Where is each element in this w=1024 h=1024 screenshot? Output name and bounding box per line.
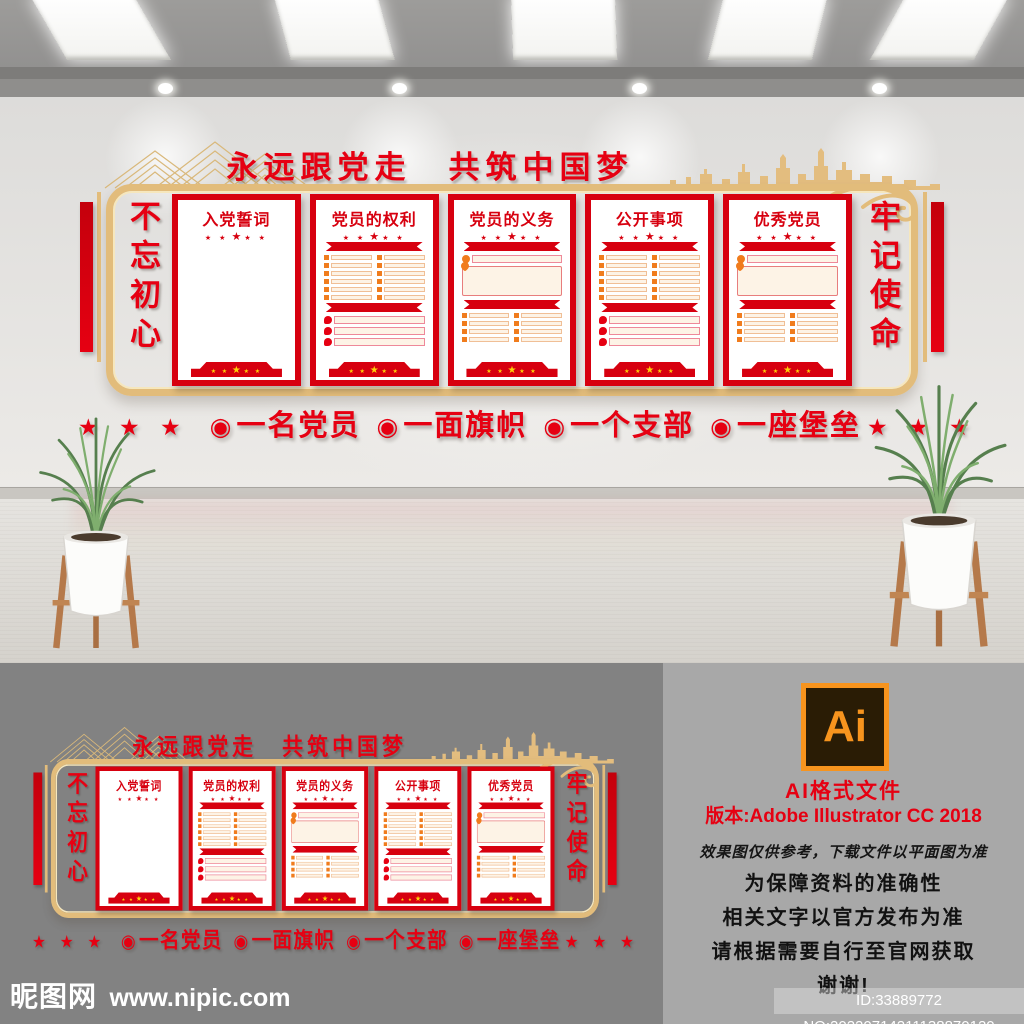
text-bar (424, 842, 452, 846)
watermark: 昵图网 www.nipic.com (10, 975, 291, 1015)
list-item (513, 862, 545, 866)
star-big: ★ (229, 365, 244, 376)
wide-row (384, 866, 452, 872)
bullet-square (291, 874, 294, 878)
footer-stars: ★ ★ ★ ★ ★ (387, 893, 448, 906)
text-bar (424, 818, 452, 822)
slogan-bullet: ◉ (376, 413, 398, 441)
text-bar-wide (472, 255, 563, 263)
panel-content (383, 800, 454, 890)
ai-logo-text: Ai (823, 702, 867, 752)
disclaimer-line-2: 相关文字以官方发布为准 (663, 901, 1024, 930)
panel-footer: ★ ★ ★ ★ ★ (480, 893, 541, 904)
text-bar (203, 824, 231, 828)
list-item (514, 313, 562, 318)
ribbon-banner (292, 803, 357, 810)
list-item (324, 295, 372, 300)
star-small: ★ ★ (144, 898, 156, 903)
list-item (477, 874, 509, 878)
list-item (790, 313, 838, 318)
list-item (420, 836, 452, 840)
bullet-square (198, 830, 201, 834)
bullet-square (291, 862, 294, 866)
bullet-square (198, 842, 201, 846)
bullet-square (324, 295, 329, 300)
star-big: ★ (506, 895, 516, 903)
panel-1: 入党誓词★ ★ ★ ★ ★★ ★ ★ ★ ★ (172, 194, 301, 386)
text-bar (517, 856, 545, 860)
footer-stars: ★ ★ ★ ★ ★ (108, 893, 169, 906)
panel-2: 党员的权利★ ★ ★ ★ ★★ ★ ★ ★ ★ (310, 194, 439, 386)
star-small: ★ ★ (624, 369, 642, 375)
text-bar (659, 271, 700, 276)
bullet-square (477, 862, 480, 866)
bullet-square (462, 321, 467, 326)
bullet-square (420, 824, 423, 828)
panel-footer: ★ ★ ★ ★ ★ (387, 893, 448, 904)
panel-content (184, 239, 289, 359)
slogan-item: 一名党员 (236, 410, 360, 442)
bullet-square (198, 812, 201, 816)
bullet-square (377, 279, 382, 284)
bullet-square (599, 287, 604, 292)
panel-footer: ★ ★ ★ ★ ★ (191, 362, 282, 377)
text-bar (606, 255, 647, 260)
panel-title: 优秀党员 (472, 776, 551, 794)
star-small: ★ ★ (122, 898, 134, 903)
text-bar (482, 874, 510, 878)
downlight (392, 83, 407, 94)
text-bar-wide (391, 875, 452, 881)
ceiling-light (29, 0, 171, 60)
list-item (477, 862, 509, 866)
list-item (737, 329, 785, 334)
list-item (384, 836, 416, 840)
slogan-item: 一座堡垒 (477, 929, 561, 953)
list-item (324, 287, 372, 292)
slogan-left-vertical: 不忘初心 (62, 771, 89, 911)
bullet-pin (198, 875, 203, 881)
bullet-square (324, 263, 329, 268)
text-bar (659, 279, 700, 284)
text-bar (384, 255, 425, 260)
gold-side-tab-left (45, 765, 48, 893)
ceiling-light (870, 0, 1011, 60)
list-item (198, 836, 230, 840)
text-bar (517, 874, 545, 878)
slogan-bullet: ◉ (210, 413, 232, 441)
bullet-square (377, 287, 382, 292)
slogan-item: 一座堡垒 (737, 410, 861, 442)
bullet-square (291, 856, 294, 860)
bullet-square (377, 295, 382, 300)
bullet-pin (384, 858, 389, 864)
bullet-square (514, 337, 519, 342)
text-bar (389, 836, 417, 840)
star-small: ★ ★ (795, 369, 813, 375)
culture-wall-3d: 永远跟党走 共筑中国梦 不忘初心 牢记使命 入党誓词★ ★ ★ ★ ★★ ★ ★… (72, 140, 952, 450)
bullet-square (377, 255, 382, 260)
list-item (327, 862, 359, 866)
list-item (790, 321, 838, 326)
text-bar (238, 812, 266, 816)
bullet-square (477, 856, 480, 860)
star-small: ★ ★ (516, 898, 528, 903)
list-item (384, 842, 416, 846)
room-render-3d: 永远跟党走 共筑中国梦 不忘初心 牢记使命 入党誓词★ ★ ★ ★ ★★ ★ ★… (0, 0, 1024, 663)
gold-side-tab-right (602, 765, 605, 893)
list-item (599, 263, 647, 268)
footer-stars: ★ ★ ★ ★ ★ (466, 362, 557, 379)
wide-row (291, 812, 359, 818)
list-item (462, 313, 510, 318)
bullet-square (384, 818, 387, 822)
star-big: ★ (413, 895, 423, 903)
slogan-item: 一个支部 (364, 929, 448, 953)
slogan-item: 一名党员 (139, 929, 223, 953)
footer-stars: ★ ★ ★ ★ ★ (329, 362, 420, 379)
panel-footer: ★ ★ ★ ★ ★ (466, 362, 557, 377)
list-item (737, 337, 785, 342)
slogan-item: 一面旗帜 (252, 929, 336, 953)
bullet-square (477, 874, 480, 878)
bullet-square (377, 263, 382, 268)
wide-row (324, 327, 425, 335)
wide-row (198, 858, 266, 864)
ribbon-banner (739, 300, 836, 309)
list-item (377, 295, 425, 300)
text-bar-wide (609, 316, 700, 324)
footer-stars: ★ ★ ★ ★ ★ (191, 362, 282, 379)
ribbon-banner (478, 803, 543, 810)
bullet-square (599, 263, 604, 268)
text-bar (384, 279, 425, 284)
list-item (198, 818, 230, 822)
text-bar (424, 812, 452, 816)
ribbon-banner (199, 848, 264, 855)
text-bar-wide (298, 812, 359, 818)
bullet-square (420, 842, 423, 846)
slogan-right-vertical: 牢记使命 (862, 200, 902, 386)
red-side-strip-right (931, 202, 944, 352)
list-item (477, 856, 509, 860)
panel-content (476, 800, 547, 890)
ribbon-banner (739, 242, 836, 251)
star-big: ★ (505, 365, 520, 376)
list-item (514, 337, 562, 342)
text-bar (482, 856, 510, 860)
bullet-square (737, 313, 742, 318)
bullet-square (384, 812, 387, 816)
text-bar (331, 263, 372, 268)
list-item (599, 295, 647, 300)
list-item (514, 329, 562, 334)
text-bar (203, 842, 231, 846)
text-bar-wide (334, 327, 425, 335)
star-small: ★ ★ (423, 898, 435, 903)
slogan-bullet: ◉ (346, 931, 361, 952)
bullet-square (384, 824, 387, 828)
bullet-square (234, 818, 237, 822)
list-item (790, 337, 838, 342)
list-grid (737, 313, 838, 342)
bullet-square (234, 836, 237, 840)
bullet-square (737, 337, 742, 342)
bullet-square (513, 862, 516, 866)
text-bar (469, 337, 510, 342)
disclaimer-line-3: 请根据需要自行至官网获取 (663, 935, 1024, 964)
slogan-item: 一个支部 (570, 410, 694, 442)
text-bar (797, 337, 838, 342)
star-small: ★ ★ (381, 369, 399, 375)
text-bar (424, 824, 452, 828)
text-bar (203, 812, 231, 816)
star-small: ★ ★ (401, 898, 413, 903)
bullet-square (291, 868, 294, 872)
list-grid (477, 856, 545, 878)
list-item (384, 812, 416, 816)
list-item (462, 337, 510, 342)
text-bar (606, 263, 647, 268)
text-bar (482, 868, 510, 872)
text-bar-wide (609, 338, 700, 346)
star-big: ★ (367, 365, 382, 376)
text-bar (331, 868, 359, 872)
star-small: ★ ★ (237, 898, 249, 903)
ceiling (0, 0, 1024, 67)
panel-title: 党员的权利 (316, 206, 433, 230)
text-box (462, 266, 563, 296)
list-item (790, 329, 838, 334)
list-item (198, 842, 230, 846)
bullet-square (198, 818, 201, 822)
star-small: ★ ★ (348, 369, 366, 375)
text-bar (424, 836, 452, 840)
text-box (477, 821, 545, 844)
bullet-square (737, 321, 742, 326)
ceiling-light (708, 0, 828, 60)
bullet-square (513, 874, 516, 878)
text-bar (744, 337, 785, 342)
downlight (872, 83, 887, 94)
panel-content (322, 239, 427, 359)
text-bar (517, 862, 545, 866)
bullet-square (790, 313, 795, 318)
text-bar (659, 295, 700, 300)
bullet-square (384, 842, 387, 846)
text-bar (238, 842, 266, 846)
panel-content (735, 239, 840, 359)
panel-title: 党员的义务 (454, 206, 571, 230)
text-bar (797, 329, 838, 334)
bullet-square (327, 874, 330, 878)
list-item (513, 874, 545, 878)
text-bar (238, 836, 266, 840)
list-item (599, 287, 647, 292)
panel-footer: ★ ★ ★ ★ ★ (201, 893, 262, 904)
list-item (737, 321, 785, 326)
list-item (384, 830, 416, 834)
bullet-square (513, 868, 516, 872)
list-item (377, 255, 425, 260)
panel-4: 公开事项★ ★ ★ ★ ★★ ★ ★ ★ ★ (375, 767, 462, 911)
bullet-square (324, 287, 329, 292)
text-bar (331, 295, 372, 300)
panel-footer: ★ ★ ★ ★ ★ (108, 893, 169, 904)
bullet-square (790, 321, 795, 326)
ribbon-banner (385, 803, 450, 810)
ribbon-banner (601, 242, 698, 251)
text-bar (384, 263, 425, 268)
list-item (377, 279, 425, 284)
text-bar (389, 812, 417, 816)
star-small: ★ ★ (330, 898, 342, 903)
bullet-square (234, 812, 237, 816)
text-bar (389, 830, 417, 834)
panel-5: 优秀党员★ ★ ★ ★ ★★ ★ ★ ★ ★ (468, 767, 555, 911)
list-item (384, 824, 416, 828)
panel-2: 党员的权利★ ★ ★ ★ ★★ ★ ★ ★ ★ (189, 767, 276, 911)
star-small: ★ ★ (244, 369, 262, 375)
list-grid (324, 255, 425, 300)
text-bar (606, 279, 647, 284)
bullet-square (599, 295, 604, 300)
text-bar (469, 313, 510, 318)
list-item (234, 836, 266, 840)
slogan-stars-left: ★ ★ ★ (32, 932, 106, 952)
bullet-square (324, 255, 329, 260)
text-bar (744, 313, 785, 318)
text-bar (331, 279, 372, 284)
bullet-square (652, 287, 657, 292)
list-item (234, 824, 266, 828)
gold-side-tab-right (923, 192, 927, 362)
list-item (420, 842, 452, 846)
potted-plant-left (14, 406, 178, 660)
list-grid (462, 313, 563, 342)
bullet-square (462, 329, 467, 334)
bullet-pin (599, 327, 607, 335)
list-item (291, 862, 323, 866)
bullet-pin (599, 338, 607, 346)
text-bar-wide (205, 875, 266, 881)
bullet-square (514, 321, 519, 326)
list-item (377, 263, 425, 268)
text-bar (331, 856, 359, 860)
text-bar (606, 295, 647, 300)
text-bar-wide (484, 812, 545, 818)
star-big: ★ (227, 895, 237, 903)
list-item (327, 856, 359, 860)
bullet-square (462, 313, 467, 318)
bullet-square (599, 255, 604, 260)
adobe-illustrator-logo: Ai (801, 683, 889, 771)
panel-1: 入党誓词★ ★ ★ ★ ★★ ★ ★ ★ ★ (96, 767, 183, 911)
panel-footer: ★ ★ ★ ★ ★ (294, 893, 355, 904)
wide-row (384, 875, 452, 881)
banner-title: 永远跟党走 共筑中国梦 (200, 142, 660, 187)
list-grid (291, 856, 359, 878)
bullet-square (234, 824, 237, 828)
list-item (420, 812, 452, 816)
star-small: ★ ★ (657, 369, 675, 375)
panel-content (597, 239, 702, 359)
panel-title: 公开事项 (379, 776, 458, 794)
watermark-site-url: www.nipic.com (109, 984, 290, 1012)
list-item (324, 263, 372, 268)
text-bar (331, 862, 359, 866)
bullet-square (652, 279, 657, 284)
panel-title: 党员的权利 (193, 776, 272, 794)
wide-row (599, 316, 700, 324)
text-bar-wide (205, 858, 266, 864)
footer-stars: ★ ★ ★ ★ ★ (480, 893, 541, 906)
list-item (234, 818, 266, 822)
text-bar-wide (391, 866, 452, 872)
text-bar (744, 329, 785, 334)
text-bar (389, 818, 417, 822)
wide-row (737, 255, 838, 263)
panels-row: 入党誓词★ ★ ★ ★ ★★ ★ ★ ★ ★党员的权利★ ★ ★ ★ ★★ ★ … (172, 194, 852, 386)
panel-footer: ★ ★ ★ ★ ★ (329, 362, 420, 377)
text-bar (659, 263, 700, 268)
list-item (599, 255, 647, 260)
list-item (291, 874, 323, 878)
bullet-square (324, 271, 329, 276)
list-item (420, 818, 452, 822)
bullet-square (198, 824, 201, 828)
footer-stars: ★ ★ ★ ★ ★ (742, 362, 833, 379)
bullet-square (234, 842, 237, 846)
list-item (234, 842, 266, 846)
text-box (291, 821, 359, 844)
ribbon-banner (464, 300, 561, 309)
disclaimer-italic: 效果图仅供参考，下载文件以平面图为准 (663, 841, 1024, 862)
panel-title: 入党誓词 (100, 776, 179, 794)
text-bar (389, 842, 417, 846)
wide-row (198, 875, 266, 881)
culture-wall-design: 永远跟党走 共筑中国梦 不忘初心 牢记使命 入党誓词★ ★ ★ ★ ★★ ★ ★… (72, 140, 952, 450)
bullet-square (327, 856, 330, 860)
star-big: ★ (134, 895, 144, 903)
panel-content (104, 800, 175, 890)
list-item (291, 856, 323, 860)
wide-row (198, 866, 266, 872)
star-small: ★ ★ (762, 369, 780, 375)
list-item (234, 830, 266, 834)
culture-wall-flat: 永远跟党走 共筑中国梦 不忘初心 牢记使命 入党誓词★ ★ ★ ★ ★★ ★ ★… (28, 726, 622, 959)
watermark-site-name: 昵图网 (10, 981, 97, 1012)
panel-content (290, 800, 361, 890)
bullet-square (327, 868, 330, 872)
bullet-square (420, 812, 423, 816)
text-bar-wide (609, 327, 700, 335)
ribbon-banner (601, 303, 698, 312)
list-item (324, 255, 372, 260)
star-small: ★ ★ (519, 369, 537, 375)
red-side-strip-right (608, 773, 617, 886)
list-item (513, 856, 545, 860)
star-big: ★ (780, 365, 795, 376)
footer-stars: ★ ★ ★ ★ ★ (604, 362, 695, 379)
disclaimer-line-1: 为保障资料的准确性 (663, 867, 1024, 896)
bullet-square (327, 862, 330, 866)
list-item (377, 287, 425, 292)
ribbon-banner (292, 846, 357, 853)
slogan-left-vertical: 不忘初心 (122, 200, 162, 386)
wide-row (462, 255, 563, 263)
text-bar (331, 287, 372, 292)
